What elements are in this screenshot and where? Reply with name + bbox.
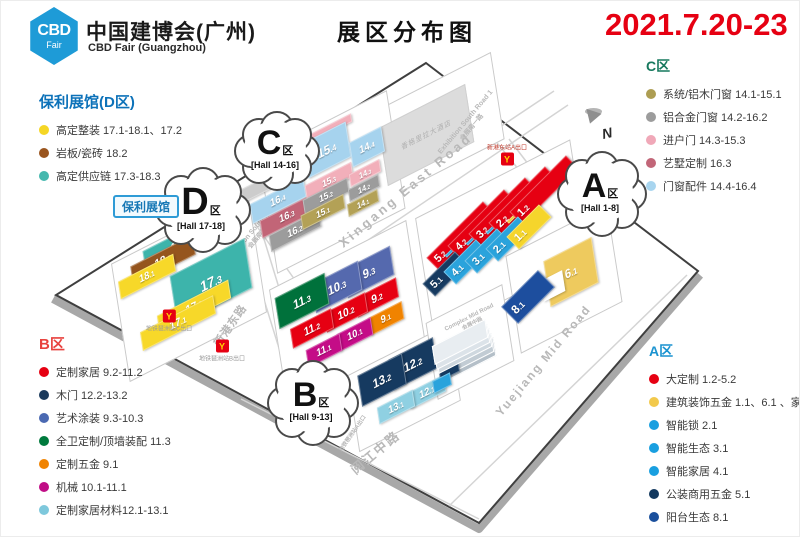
metro-exit-label: 地铁琶洲站C出口 [146,324,192,333]
legend-title-d: 保利展馆(D区) [39,91,182,112]
metro-exit: Y地铁琶洲站B出口 [199,340,245,363]
legend-label: 公装商用五金 5.1 [666,486,750,502]
legend-item: 智能家居 4.1 [649,459,800,482]
legend-dot-icon [649,466,659,476]
zone-cloud-b: B区[Hall 9-13] [267,362,355,440]
legend-item: 艺术涂装 9.3-10.3 [39,406,171,429]
legend-item: 铝合金门窗 14.2-16.2 [646,105,782,128]
legend-label: 进户门 14.3-15.3 [663,132,746,148]
metro-exit: 新港东站A出口Y [487,143,527,166]
legend-dot-icon [649,374,659,384]
legend-dot-icon [39,413,49,423]
zone-cloud-a: A区[Hall 1-8] [557,153,643,231]
legend-label: 定制家居材料12.1-13.1 [56,502,168,518]
legend-label: 智能锁 2.1 [666,417,717,433]
legend-dot-icon [39,436,49,446]
legend-label: 高定供应链 17.3-18.3 [56,168,161,184]
legend-label: 定制五金 9.1 [56,456,118,472]
legend-item: 高定整装 17.1-18.1、17.2 [39,118,182,141]
legend-label: 大定制 1.2-5.2 [666,371,736,387]
legend-item: 系统/铝木门窗 14.1-15.1 [646,82,782,105]
legend-item: 定制家居材料12.1-13.1 [39,498,171,521]
legend-label: 木门 12.2-13.2 [56,387,128,403]
poly-pavilion-badge: 保利展馆 [113,195,179,218]
legend-label: 高定整装 17.1-18.1、17.2 [56,122,182,138]
zone-cloud-label: B区[Hall 9-13] [267,362,355,440]
legend-label: 机械 10.1-11.1 [56,479,127,495]
legend-item: 建筑装饰五金 1.1、6.1 、家居精品廊 [649,390,800,413]
legend-dot-icon [646,89,656,99]
legend-dot-icon [39,367,49,377]
legend-dot-icon [646,181,656,191]
legend-label: 系统/铝木门窗 14.1-15.1 [663,86,782,102]
legend-label: 门窗配件 14.4-16.4 [663,178,757,194]
legend-dot-icon [39,390,49,400]
legend-item: 大定制 1.2-5.2 [649,367,800,390]
metro-icon: Y [500,153,513,166]
legend-item: 定制家居 9.2-11.2 [39,360,171,383]
legend-zone-c: C区系统/铝木门窗 14.1-15.1铝合金门窗 14.2-16.2进户门 14… [646,56,782,197]
legend-dot-icon [39,171,49,181]
metro-exit: Y地铁琶洲站C出口 [146,310,192,333]
page: CBD Fair 中国建博会(广州) CBD Fair (Guangzhou) … [0,0,800,537]
legend-label: 建筑装饰五金 1.1、6.1 、家居精品廊 [666,394,800,410]
legend-label: 智能家居 4.1 [666,463,728,479]
legend-item: 智能锁 2.1 [649,413,800,436]
legend-dot-icon [646,112,656,122]
legend-dot-icon [646,158,656,168]
legend-dot-icon [649,512,659,522]
legend-item: 全卫定制/顶墙装配 11.3 [39,429,171,452]
legend-dot-icon [649,420,659,430]
legend-dot-icon [646,135,656,145]
legend-zone-a: A区大定制 1.2-5.2建筑装饰五金 1.1、6.1 、家居精品廊智能锁 2.… [649,341,800,528]
legend-dot-icon [39,125,49,135]
metro-icon: Y [215,340,228,353]
legend-item: 门窗配件 14.4-16.4 [646,174,782,197]
legend-item: 公装商用五金 5.1 [649,482,800,505]
legend-title-b: B区 [39,333,171,354]
legend-title-a: A区 [649,341,800,361]
legend-label: 智能生态 3.1 [666,440,728,456]
legend-dot-icon [39,148,49,158]
legend-item: 岩板/瓷砖 18.2 [39,141,182,164]
legend-dot-icon [39,505,49,515]
zone-cloud-label: A区[Hall 1-8] [557,153,643,231]
legend-zone-b: B区定制家居 9.2-11.2木门 12.2-13.2艺术涂装 9.3-10.3… [39,333,171,521]
legend-label: 全卫定制/顶墙装配 11.3 [56,433,171,449]
legend-label: 阳台生态 8.1 [666,509,728,525]
legend-item: 智能生态 3.1 [649,436,800,459]
compass-north-icon: N [584,111,624,153]
metro-exit-label: 新港东站A出口 [487,143,527,152]
legend-dot-icon [39,459,49,469]
legend-item: 阳台生态 8.1 [649,505,800,528]
legend-label: 艺墅定制 16.3 [663,155,731,171]
legend-dot-icon [39,482,49,492]
legend-dot-icon [649,489,659,499]
legend-item: 定制五金 9.1 [39,452,171,475]
legend-zone-d: 保利展馆(D区)高定整装 17.1-18.1、17.2岩板/瓷砖 18.2高定供… [39,91,182,187]
legend-item: 高定供应链 17.3-18.3 [39,164,182,187]
legend-item: 进户门 14.3-15.3 [646,128,782,151]
legend-dot-icon [649,397,659,407]
legend-item: 艺墅定制 16.3 [646,151,782,174]
legend-label: 艺术涂装 9.3-10.3 [56,410,143,426]
metro-icon: Y [163,310,176,323]
legend-title-c: C区 [646,56,782,76]
legend-label: 定制家居 9.2-11.2 [56,364,143,380]
legend-label: 铝合金门窗 14.2-16.2 [663,109,768,125]
metro-exit-label: 地铁琶洲站B出口 [199,354,245,363]
legend-label: 岩板/瓷砖 18.2 [56,145,128,161]
legend-item: 机械 10.1-11.1 [39,475,171,498]
legend-item: 木门 12.2-13.2 [39,383,171,406]
legend-dot-icon [649,443,659,453]
